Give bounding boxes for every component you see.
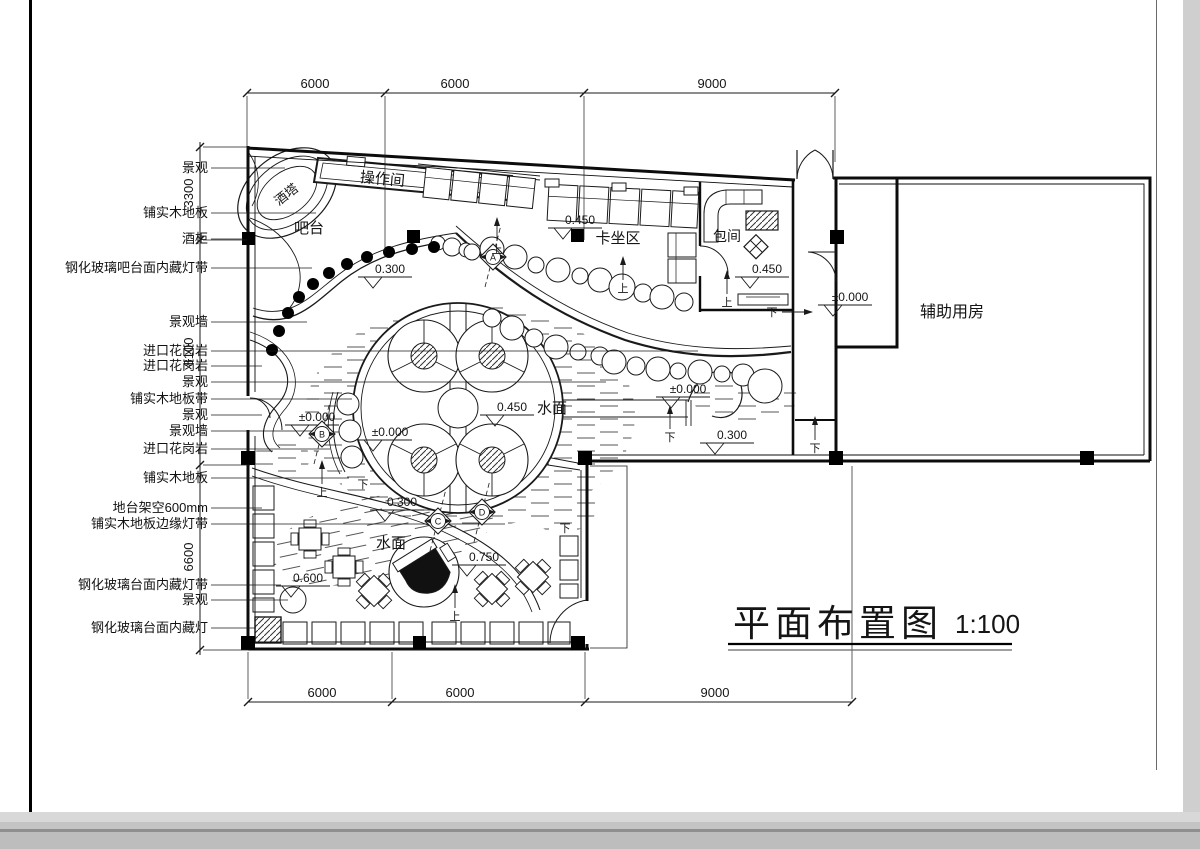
stair-mark: 上 — [492, 217, 503, 256]
section-letter: B — [319, 430, 325, 440]
private-room-door — [700, 246, 728, 274]
elevation-triangle — [706, 443, 724, 454]
title-block: 平面布置图 1:100 — [728, 603, 1020, 650]
private-room-cabinet — [738, 294, 788, 305]
stair-mark: 上 — [722, 270, 733, 309]
elevation-marker: ±0.000 — [818, 290, 872, 316]
elevation-marker: 0.450 — [735, 262, 789, 288]
dim-label: 9000 — [698, 76, 727, 91]
island-center-table — [438, 388, 478, 428]
section-marker-A: A — [480, 225, 506, 287]
floor-plan-drawing: 600060009000600060009000330081006600 ±0.… — [0, 0, 1200, 849]
side-entry-door — [250, 398, 282, 430]
elevation-value: ±0.000 — [832, 290, 869, 304]
dim-label: 6000 — [446, 685, 475, 700]
elevation-value: ±0.000 — [299, 410, 336, 424]
private-room-lamp — [744, 235, 768, 259]
dim-label: 3300 — [181, 179, 196, 208]
elevation-triangle — [824, 305, 842, 316]
drawing-title: 平面布置图 — [733, 603, 943, 644]
stair-label: 上 — [317, 486, 328, 499]
sheet-frame-left-line — [29, 0, 32, 812]
elevation-value: 0.750 — [469, 550, 499, 564]
elevation-value: 0.450 — [752, 262, 782, 276]
plan-label: 酒塔 — [271, 181, 301, 209]
stair-mark: 下 — [810, 416, 821, 455]
stair-label: 下 — [560, 523, 571, 535]
drawing-sheet: 600060009000600060009000330081006600 ±0.… — [0, 0, 1200, 849]
private-room-tv — [746, 211, 778, 230]
island-pod-se — [456, 424, 528, 496]
plan-label: 卡坐区 — [595, 230, 640, 247]
elevation-triangle — [364, 277, 382, 288]
stair-arrowhead — [620, 256, 626, 265]
stair-label: 下 — [767, 307, 778, 319]
elevation-marker: 0.300 — [700, 428, 754, 454]
platform-edge — [590, 466, 627, 648]
elevation-value: 0.300 — [717, 428, 747, 442]
elevation-value: ±0.000 — [372, 425, 409, 439]
stair-label: 上 — [722, 296, 733, 309]
water-area-entry — [254, 440, 310, 476]
drawing-scale: 1:100 — [955, 609, 1020, 639]
sheet-frame-right-line — [1156, 0, 1157, 770]
plan-label: 水面 — [376, 535, 406, 552]
plan-label: 辅助用房 — [920, 303, 984, 321]
stair-label: 下 — [358, 479, 369, 491]
stair-mark: 下 — [358, 479, 369, 491]
stair-label: 上 — [492, 243, 503, 256]
stair-arrowhead — [724, 270, 730, 279]
elevation-value: 0.300 — [387, 495, 417, 509]
dim-label: 6600 — [181, 543, 196, 572]
plan-label: 包间 — [713, 228, 741, 244]
stair-label: 上 — [450, 610, 461, 623]
elevation-value: 0.450 — [565, 213, 595, 227]
page-background-bottom — [0, 812, 1200, 849]
page-background-right — [1183, 0, 1200, 849]
elevation-value: ±0.000 — [670, 382, 707, 396]
island-pod-nw — [388, 320, 460, 392]
curl-wall-stem — [686, 400, 691, 426]
elevation-marker: 0.750 — [452, 550, 506, 576]
stair-label: 下 — [810, 443, 821, 455]
stair-label: 下 — [665, 432, 676, 444]
main-entry-double-door — [797, 150, 833, 179]
plan-label: 吧台 — [294, 220, 324, 237]
private-room-interior — [704, 190, 788, 305]
section-letter: C — [435, 517, 442, 527]
dim-label: 6000 — [308, 685, 337, 700]
plan-label: 水面 — [537, 400, 567, 417]
stair-mark: 下 — [665, 405, 676, 444]
dim-label: 6000 — [301, 76, 330, 91]
elevation-value: 0.600 — [293, 571, 323, 585]
stair-arrowhead — [494, 217, 500, 226]
elevation-value: 0.300 — [375, 262, 405, 276]
stair-arrowhead — [804, 309, 813, 315]
elevation-triangle — [662, 397, 680, 408]
elevation-triangle — [458, 565, 476, 576]
stair-mark: 下 — [560, 523, 571, 535]
landscape-s-curve — [250, 340, 288, 452]
elevation-triangle — [554, 228, 572, 239]
corridor-door — [808, 252, 836, 282]
section-letter: D — [479, 508, 486, 518]
elevation-value: 0.450 — [497, 400, 527, 414]
booth-zone-legend-square — [571, 229, 584, 242]
dim-label: 8100 — [181, 338, 196, 367]
elevation-triangle — [741, 277, 759, 288]
stair-label: 上 — [618, 282, 629, 295]
dim-label: 9000 — [701, 685, 730, 700]
dim-label: 6000 — [441, 76, 470, 91]
glass-counter-lamp-corner — [255, 617, 281, 643]
bar-back-wall — [250, 218, 300, 310]
